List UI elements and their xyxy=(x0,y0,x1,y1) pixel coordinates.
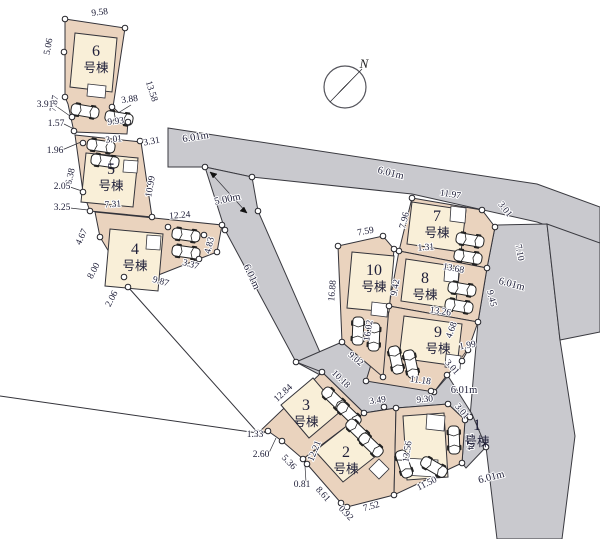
dimension-label: 12.24 xyxy=(169,210,191,222)
compass: N xyxy=(324,56,370,108)
dimension-label: 3.25 xyxy=(54,203,71,213)
building-suffix: 号棟 xyxy=(333,461,359,476)
dimension-label: 9.58 xyxy=(91,7,109,19)
house-1-notch xyxy=(426,414,445,431)
compass-needle-line xyxy=(330,69,362,102)
house-6-porch xyxy=(87,84,106,98)
building-number: 7 xyxy=(433,208,441,225)
dimension-label: 1.96 xyxy=(47,146,64,156)
house-5-porch xyxy=(123,160,138,173)
dimension-label: 5.36 xyxy=(279,453,298,472)
boundary-line xyxy=(128,287,258,433)
boundary-line xyxy=(0,396,258,433)
building-suffix: 号棟 xyxy=(361,279,387,294)
house-10-porch xyxy=(371,302,388,317)
building-number: 6 xyxy=(92,43,100,60)
dimension-label: 3.31 xyxy=(143,136,161,149)
building-suffix: 号棟 xyxy=(412,287,438,302)
house-4-porch xyxy=(146,235,161,250)
building-suffix: 号棟 xyxy=(424,225,450,240)
building-suffix: 号棟 xyxy=(83,60,109,75)
dimension-label: 1.33 xyxy=(247,430,264,440)
building-number: 5 xyxy=(107,161,115,178)
building-number: 9 xyxy=(434,324,442,341)
building-number: 8 xyxy=(421,270,429,287)
dimension-label: 3.91 xyxy=(37,100,54,110)
dimension-label: 4.67 xyxy=(74,227,90,247)
dimension-label: 2.06 xyxy=(104,289,121,309)
site-plan-svg: N 9.585.067.8713.583.883.911.579.933.013… xyxy=(0,0,600,539)
building-number: 4 xyxy=(131,241,139,258)
dimension-label: 2.60 xyxy=(253,450,270,460)
dimension-label: 7.31 xyxy=(104,199,122,210)
house-7-porch xyxy=(450,206,466,223)
dimension-label: 5.06 xyxy=(43,37,56,55)
boundary-lines xyxy=(0,287,258,433)
building-suffix: 号棟 xyxy=(122,258,148,273)
car-icon xyxy=(446,426,461,454)
dimension-label: 8.00 xyxy=(86,261,103,281)
dimension-label: 1.31 xyxy=(417,242,435,253)
building-number: 3 xyxy=(302,397,310,414)
dimension-label: 7.59 xyxy=(357,226,375,239)
dimension-label: 1.99 xyxy=(459,340,477,353)
building-number: 2 xyxy=(342,444,350,461)
leader xyxy=(70,208,88,210)
dimension-label: 6.01m xyxy=(451,385,478,396)
dimension-label: 0.92 xyxy=(336,504,355,523)
building-number: 10 xyxy=(366,262,382,279)
dimension-label: 9.30 xyxy=(416,394,434,405)
site-plan: N 9.585.067.8713.583.883.911.579.933.013… xyxy=(0,0,600,539)
dimension-label: 3.01 xyxy=(105,134,123,146)
dimension-label: 1.57 xyxy=(48,119,65,129)
leader xyxy=(118,105,131,113)
building-number: 1 xyxy=(473,417,481,434)
building-suffix: 号棟 xyxy=(464,434,490,449)
building-suffix: 号棟 xyxy=(293,414,319,429)
building-suffix: 号棟 xyxy=(425,341,451,356)
dimension-label: 2.05 xyxy=(54,182,71,192)
dimension-label: 13.58 xyxy=(143,80,159,104)
building-suffix: 号棟 xyxy=(98,178,124,193)
dimension-label: 16.88 xyxy=(327,279,339,301)
leader xyxy=(269,438,276,453)
dimension-label: 0.81 xyxy=(294,480,311,490)
compass-north-label: N xyxy=(359,56,370,71)
dimension-label: 9.93 xyxy=(107,116,125,128)
dimension-label: 3.88 xyxy=(121,94,139,106)
